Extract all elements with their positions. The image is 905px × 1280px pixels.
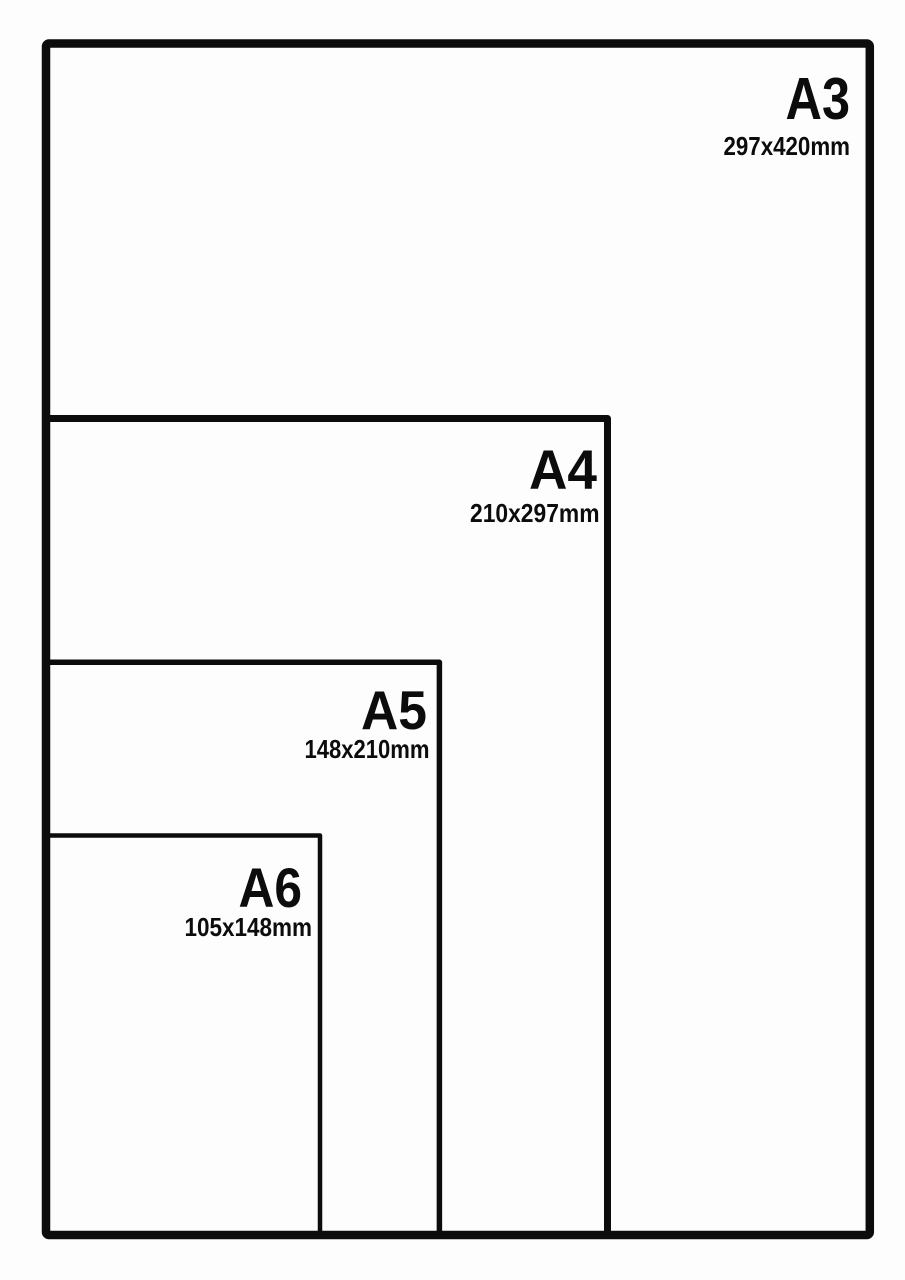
svg-text:297x420mm: 297x420mm bbox=[724, 131, 851, 161]
svg-text:A6: A6 bbox=[239, 856, 303, 919]
svg-text:A3: A3 bbox=[786, 66, 851, 132]
svg-text:A5: A5 bbox=[361, 679, 427, 741]
svg-text:105x148mm: 105x148mm bbox=[185, 912, 313, 942]
svg-text:148x210mm: 148x210mm bbox=[305, 734, 430, 764]
svg-text:210x297mm: 210x297mm bbox=[470, 498, 600, 528]
svg-text:A4: A4 bbox=[529, 438, 597, 501]
